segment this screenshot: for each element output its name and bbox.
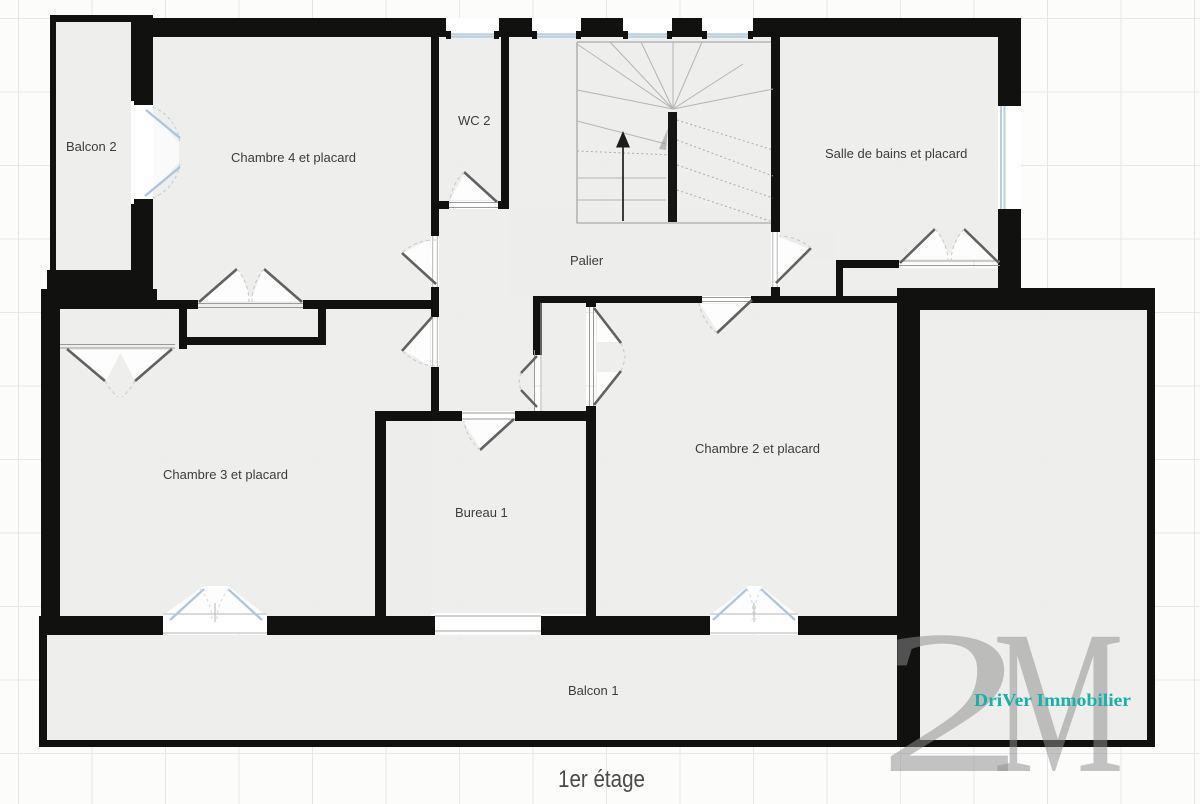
svg-text:DriVer Immobilier: DriVer Immobilier xyxy=(974,690,1131,710)
svg-text:Chambre 4 et placard: Chambre 4 et placard xyxy=(231,150,356,165)
svg-text:Palier: Palier xyxy=(570,253,604,268)
svg-text:Salle de bains et placard: Salle de bains et placard xyxy=(825,146,967,161)
svg-text:Balcon 1: Balcon 1 xyxy=(568,683,619,698)
svg-text:Chambre 3 et placard: Chambre 3 et placard xyxy=(163,467,288,482)
svg-text:WC 2: WC 2 xyxy=(458,113,491,128)
svg-text:Balcon 2: Balcon 2 xyxy=(66,139,117,154)
svg-text:1er étage: 1er étage xyxy=(558,766,645,793)
svg-text:Chambre 2 et placard: Chambre 2 et placard xyxy=(695,441,820,456)
svg-text:Bureau 1: Bureau 1 xyxy=(455,505,508,520)
